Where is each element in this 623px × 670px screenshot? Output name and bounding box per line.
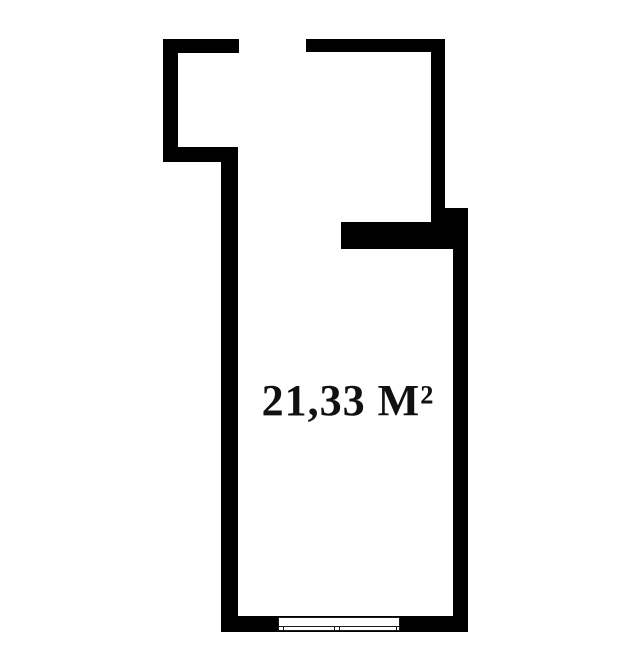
window-tick bbox=[334, 627, 335, 630]
window-tick bbox=[283, 627, 284, 630]
window-tick bbox=[396, 627, 397, 630]
floorplan-canvas: 21,33 М² bbox=[0, 0, 623, 670]
left-main-wall bbox=[221, 147, 238, 632]
notch-wall bbox=[341, 222, 468, 249]
window-tick bbox=[339, 627, 340, 630]
right-step-block bbox=[445, 208, 468, 222]
walls-layer bbox=[0, 0, 623, 670]
top-right-wall bbox=[306, 39, 445, 52]
area-label: 21,33 М² bbox=[238, 379, 458, 423]
window bbox=[278, 617, 400, 631]
vestibule-left-wall bbox=[163, 39, 178, 162]
right-upper-wall bbox=[431, 39, 445, 222]
right-lower-wall bbox=[453, 222, 468, 632]
